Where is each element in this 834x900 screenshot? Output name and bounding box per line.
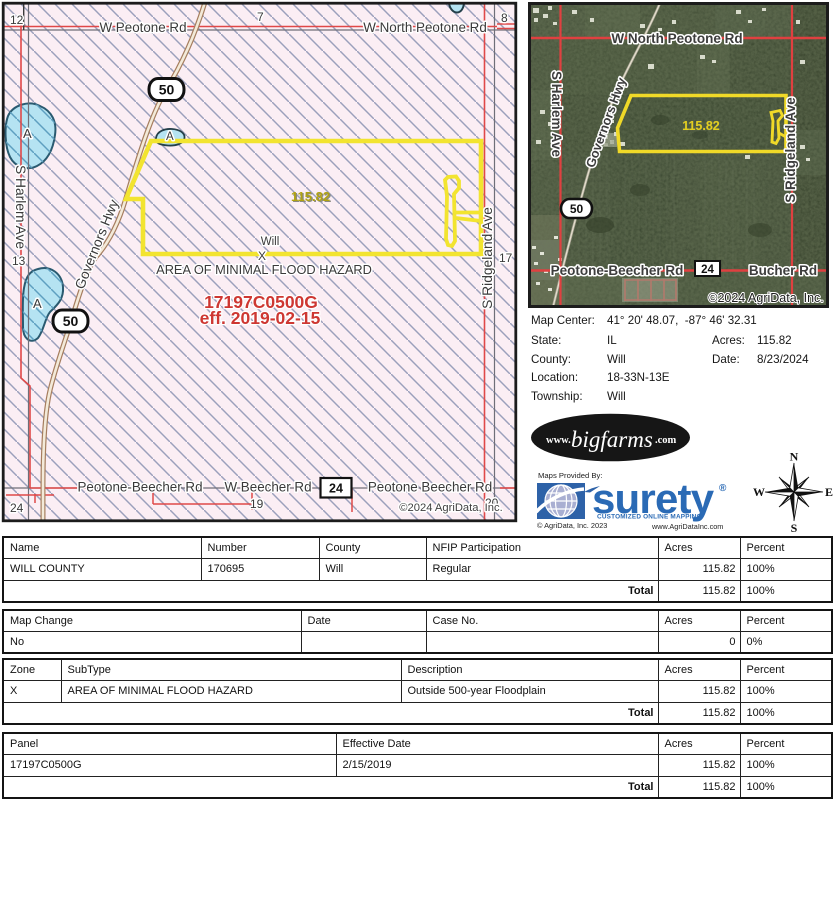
svg-text:bigfarms: bigfarms bbox=[571, 427, 653, 452]
svg-text:17: 17 bbox=[499, 251, 513, 265]
svg-text:S Harlem Ave: S Harlem Ave bbox=[13, 165, 28, 249]
svg-text:W: W bbox=[753, 485, 765, 499]
svg-text:AREA OF MINIMAL FLOOD HAZARD: AREA OF MINIMAL FLOOD HAZARD bbox=[156, 262, 372, 277]
svg-text:©2024 AgriData, Inc.: ©2024 AgriData, Inc. bbox=[708, 291, 824, 305]
svg-text:S: S bbox=[791, 521, 798, 535]
svg-text:Will: Will bbox=[261, 236, 280, 248]
svg-text:W North Peotone Rd: W North Peotone Rd bbox=[363, 20, 487, 35]
svg-text:Peotone-Beecher Rd: Peotone-Beecher Rd bbox=[551, 263, 684, 278]
svg-text:CUSTOMIZED ONLINE MAPPING: CUSTOMIZED ONLINE MAPPING bbox=[597, 514, 702, 521]
svg-text:.com: .com bbox=[655, 435, 677, 446]
svg-text:®: ® bbox=[719, 483, 727, 494]
svg-text:19: 19 bbox=[250, 497, 264, 511]
svg-text:50: 50 bbox=[570, 202, 584, 216]
svg-text:S Harlem Ave: S Harlem Ave bbox=[549, 71, 564, 158]
svg-text:13: 13 bbox=[12, 254, 26, 268]
svg-text:A: A bbox=[33, 296, 42, 311]
svg-text:A: A bbox=[166, 131, 174, 143]
svg-text:50: 50 bbox=[159, 82, 175, 98]
svg-text:W North Peotone Rd: W North Peotone Rd bbox=[611, 31, 742, 46]
svg-text:www.: www. bbox=[546, 435, 571, 446]
svg-text:50: 50 bbox=[63, 313, 79, 329]
svg-text:eff. 2019-02-15: eff. 2019-02-15 bbox=[200, 308, 321, 328]
svg-text:7: 7 bbox=[257, 10, 264, 24]
svg-text:S Ridgeland Ave: S Ridgeland Ave bbox=[480, 207, 495, 309]
svg-text:©2024 AgriData, Inc.: ©2024 AgriData, Inc. bbox=[399, 502, 502, 514]
svg-text:X: X bbox=[258, 249, 266, 263]
svg-text:N: N bbox=[790, 450, 799, 464]
svg-text:24: 24 bbox=[329, 482, 343, 496]
svg-text:W Beecher Rd: W Beecher Rd bbox=[224, 480, 311, 495]
svg-text:12: 12 bbox=[10, 13, 24, 27]
svg-text:Peotone Beecher Rd: Peotone Beecher Rd bbox=[368, 480, 492, 495]
svg-text:S Ridgeland Ave: S Ridgeland Ave bbox=[783, 97, 798, 203]
svg-text:Peotone-Beecher Rd: Peotone-Beecher Rd bbox=[77, 480, 202, 495]
svg-text:8: 8 bbox=[501, 11, 508, 25]
svg-text:A: A bbox=[23, 126, 32, 141]
svg-text:E: E bbox=[825, 485, 833, 499]
svg-text:115.82: 115.82 bbox=[291, 189, 330, 204]
svg-text:Bucher Rd: Bucher Rd bbox=[749, 263, 817, 278]
svg-text:24: 24 bbox=[10, 501, 24, 515]
svg-text:115.82: 115.82 bbox=[682, 119, 720, 133]
svg-text:24: 24 bbox=[701, 264, 714, 276]
svg-text:W Peotone Rd: W Peotone Rd bbox=[99, 20, 186, 35]
